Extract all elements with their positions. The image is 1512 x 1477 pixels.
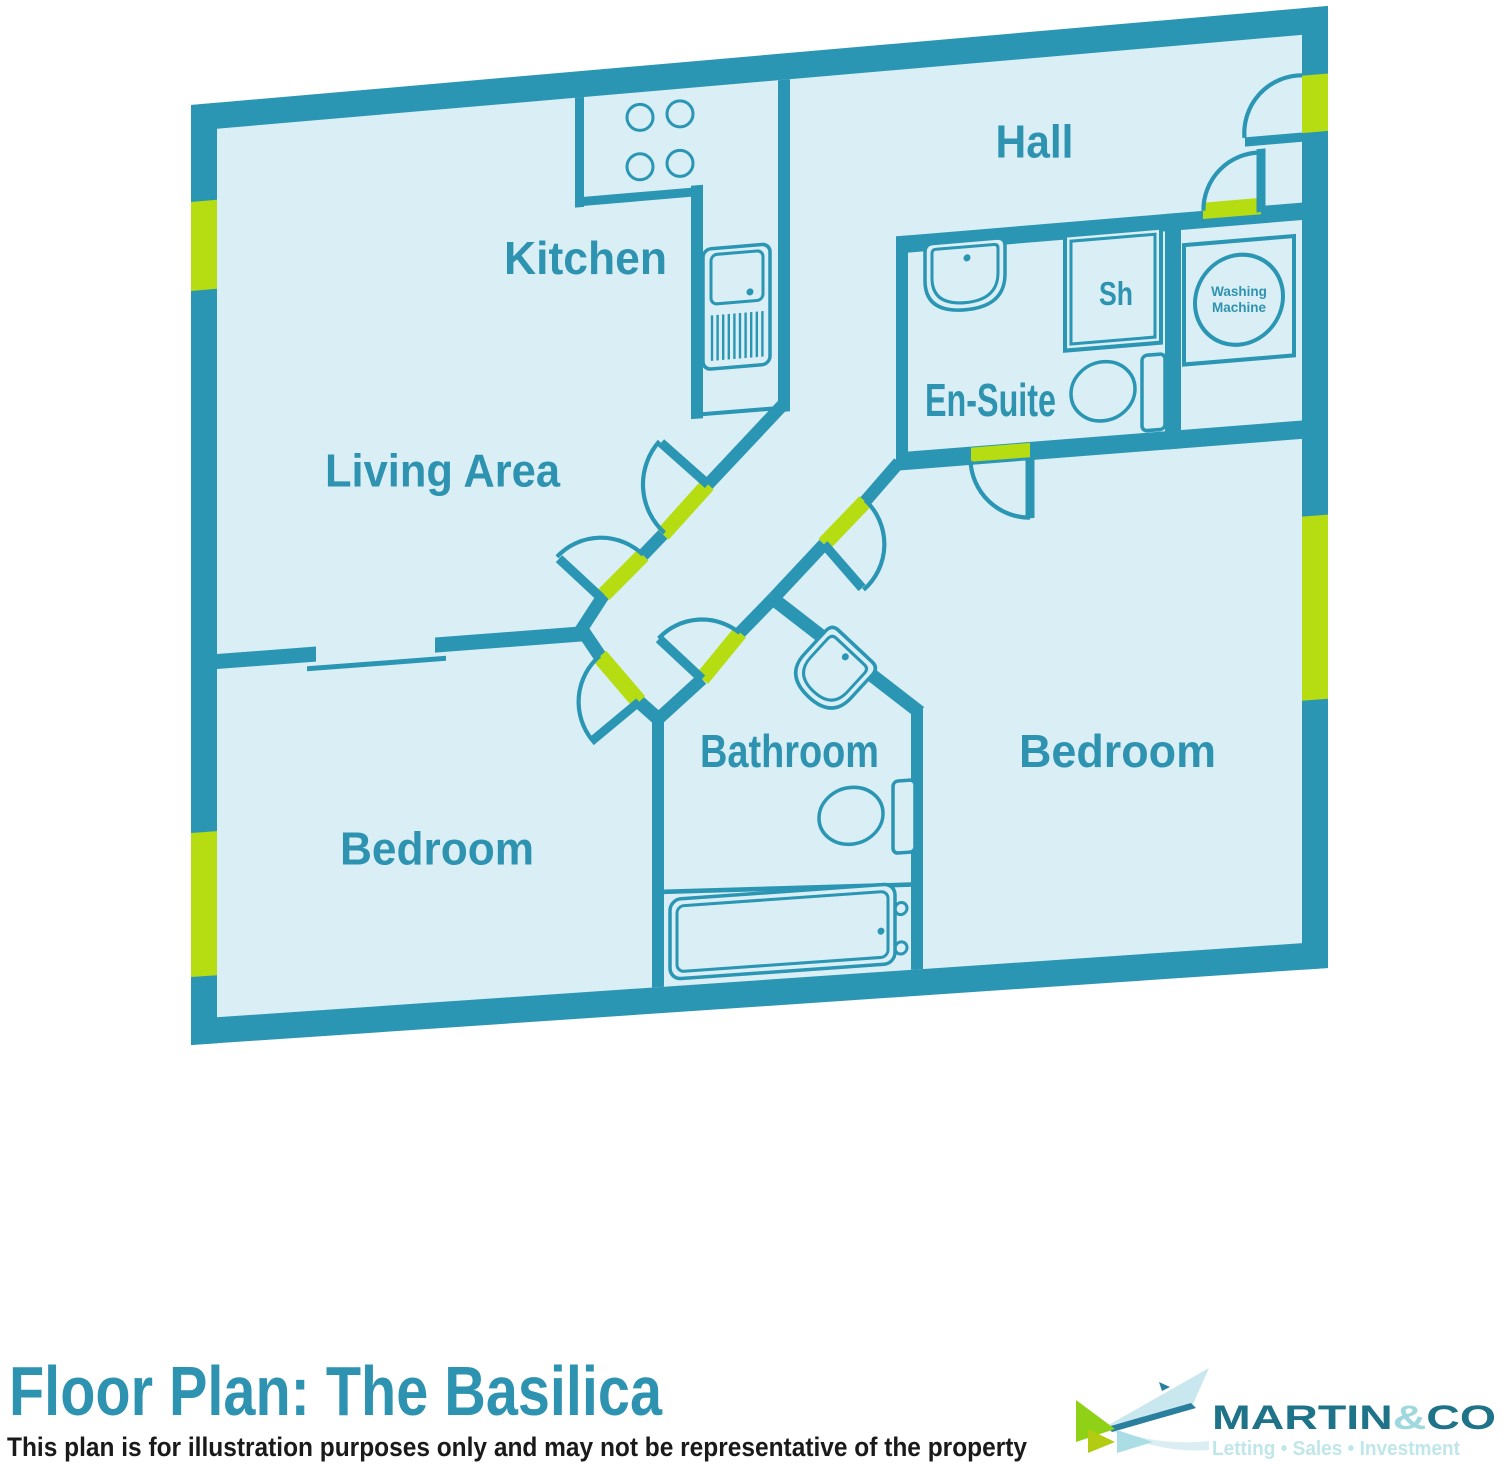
svg-text:Letting • Sales • Investment: Letting • Sales • Investment <box>1212 1438 1460 1460</box>
svg-text:Bathroom: Bathroom <box>700 725 879 777</box>
svg-text:MARTIN&CO: MARTIN&CO <box>1212 1399 1496 1437</box>
svg-text:Bedroom: Bedroom <box>340 823 534 875</box>
svg-text:En-Suite: En-Suite <box>925 374 1056 426</box>
svg-text:Machine: Machine <box>1212 300 1267 315</box>
svg-text:Floor Plan: The Basilica: Floor Plan: The Basilica <box>9 1352 663 1430</box>
svg-text:Kitchen: Kitchen <box>504 232 667 284</box>
svg-text:Bedroom: Bedroom <box>1019 725 1216 777</box>
svg-text:This plan is for illustration: This plan is for illustration purposes o… <box>7 1432 1027 1462</box>
svg-text:Sh: Sh <box>1099 275 1133 312</box>
svg-text:Hall: Hall <box>996 116 1074 168</box>
svg-text:Living Area: Living Area <box>325 445 560 497</box>
svg-text:Washing: Washing <box>1211 284 1267 299</box>
